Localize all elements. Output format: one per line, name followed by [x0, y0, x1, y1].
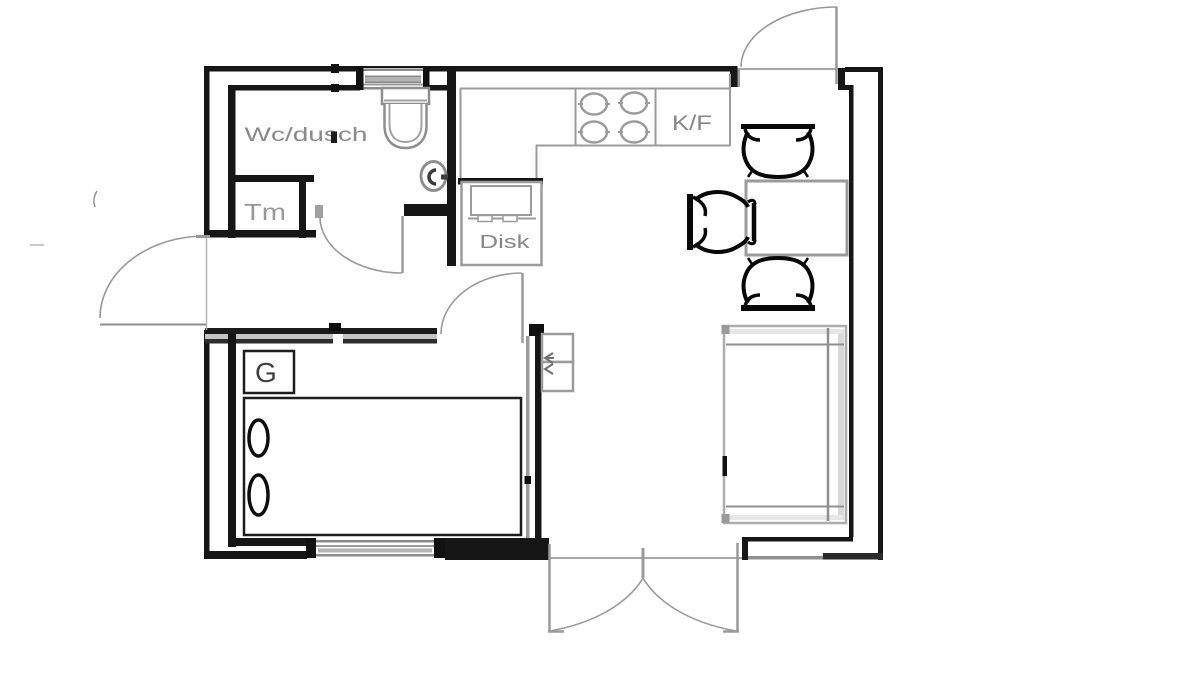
svg-text:Disk: Disk	[480, 231, 531, 252]
svg-text:Tm: Tm	[244, 199, 286, 225]
svg-text:K/F: K/F	[672, 112, 712, 135]
svg-text:G: G	[255, 357, 277, 388]
svg-text:Wc/dusch: Wc/dusch	[245, 125, 368, 146]
